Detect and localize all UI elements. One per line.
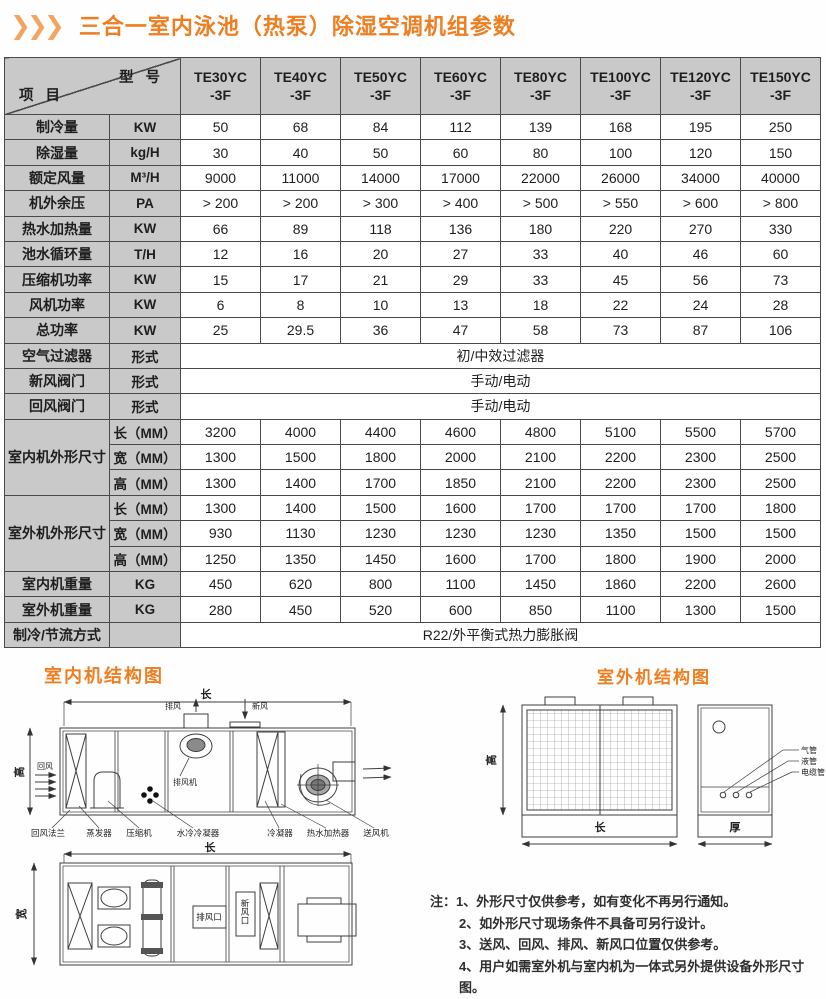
- cell-value: 4600: [421, 419, 501, 444]
- cell-value: 16: [261, 241, 341, 266]
- cell-value: 73: [581, 318, 661, 343]
- cell-value: 220: [581, 216, 661, 241]
- cell-value: 1700: [501, 546, 581, 571]
- cell-span-value: R22/外平衡式热力膨胀阀: [181, 622, 821, 647]
- exhaust-vent-label: 排风口: [196, 912, 222, 922]
- row-label: 池水循环量: [5, 241, 110, 266]
- cell-value: 1700: [341, 470, 421, 495]
- cell-value: 24: [661, 292, 741, 317]
- table-row: 新风阀门形式手动/电动: [5, 368, 821, 393]
- cell-value: 2500: [741, 470, 821, 495]
- filter-x-box: [68, 883, 92, 949]
- cell-value: 930: [181, 521, 261, 546]
- table-row: 池水循环量T/H1216202733404660: [5, 241, 821, 266]
- supply-blower-shape: [297, 762, 355, 806]
- page-title: 三合一室内泳池（热泵）除湿空调机组参数: [79, 16, 516, 38]
- cell-value: > 600: [661, 191, 741, 216]
- row-label: 压缩机功率: [5, 267, 110, 292]
- row-unit: M³/H: [110, 165, 181, 190]
- cell-value: 50: [341, 140, 421, 165]
- cell-value: 29: [421, 267, 501, 292]
- cell-value: 1500: [261, 445, 341, 470]
- row-unit: KG: [110, 597, 181, 622]
- top-tab: [545, 697, 575, 705]
- cell-value: 18: [501, 292, 581, 317]
- cell-value: 1230: [421, 521, 501, 546]
- row-unit: KW: [110, 115, 181, 140]
- cell-value: 1100: [421, 572, 501, 597]
- corner-model-label: 型 号: [119, 66, 164, 87]
- cell-value: 10: [341, 292, 421, 317]
- row-label: 新风阀门: [5, 368, 110, 393]
- table-row: 高（MM）13001400170018502100220023002500: [5, 470, 821, 495]
- dim-length-label: 长: [201, 688, 213, 701]
- return-air-label: 回风: [37, 762, 53, 771]
- row-label: 制冷量: [5, 115, 110, 140]
- cell-value: 21: [341, 267, 421, 292]
- cell-value: 2100: [501, 470, 581, 495]
- cell-value: 22: [581, 292, 661, 317]
- cell-value: 1500: [741, 597, 821, 622]
- cell-value: 106: [741, 318, 821, 343]
- pipe-leader-lines: [724, 750, 799, 792]
- cell-value: 1800: [341, 445, 421, 470]
- row-label: 制冷/节流方式: [5, 622, 110, 647]
- cell-value: 12: [181, 241, 261, 266]
- supply-air-arrows-icon: [363, 768, 391, 778]
- table-row: 空气过滤器形式初/中效过滤器: [5, 343, 821, 368]
- cell-value: 2000: [421, 445, 501, 470]
- spec-table-head: 型 号项 目TE30YC-3FTE40YC-3FTE50YC-3FTE60YC-…: [5, 58, 821, 115]
- cell-value: 1130: [261, 521, 341, 546]
- dim-width-label: 宽: [14, 909, 28, 921]
- cell-value: 27: [421, 241, 501, 266]
- model-name: TE30YC: [181, 68, 260, 86]
- row-unit: 宽（MM）: [110, 445, 181, 470]
- row-unit: KG: [110, 572, 181, 597]
- row-unit: KW: [110, 267, 181, 292]
- cell-value: 270: [661, 216, 741, 241]
- note-line: 2、如外形尺寸现场条件不具备可另行设计。: [430, 913, 824, 935]
- exhaust-fan-shape: [180, 699, 212, 776]
- cell-value: 5100: [581, 419, 661, 444]
- dim-height-label: 高: [12, 767, 26, 778]
- cell-value: 68: [261, 115, 341, 140]
- exhaust-air-label: 排风: [165, 701, 181, 711]
- cell-value: 1700: [581, 495, 661, 520]
- cell-value: 2300: [661, 445, 741, 470]
- section-dividers: [171, 866, 284, 962]
- row-unit: 形式: [110, 368, 181, 393]
- row-unit: KW: [110, 292, 181, 317]
- cell-span-value: 手动/电动: [181, 394, 821, 419]
- component-label: 热水加热器: [307, 828, 350, 838]
- cell-value: 9000: [181, 165, 261, 190]
- cell-value: 30: [181, 140, 261, 165]
- cell-value: 118: [341, 216, 421, 241]
- pipe-port: [733, 792, 739, 798]
- indoor-unit-top-view-diagram: 长 宽 排风口 新风口: [8, 842, 408, 990]
- cell-value: 1500: [741, 521, 821, 546]
- cell-value: 195: [661, 115, 741, 140]
- component-label: 压缩机: [126, 828, 152, 838]
- table-row: 热水加热量KW6689118136180220270330: [5, 216, 821, 241]
- row-unit: [110, 622, 181, 647]
- row-label: 额定风量: [5, 165, 110, 190]
- cell-value: 620: [261, 572, 341, 597]
- cell-value: 84: [341, 115, 421, 140]
- cell-value: 58: [501, 318, 581, 343]
- table-row: 机外余压PA> 200> 200> 300> 400> 500> 550> 60…: [5, 191, 821, 216]
- cell-value: 2300: [661, 470, 741, 495]
- cell-value: 150: [741, 140, 821, 165]
- model-name: TE80YC: [501, 68, 580, 86]
- cell-value: 1850: [421, 470, 501, 495]
- cell-value: 1250: [181, 546, 261, 571]
- table-row: 宽（MM）13001500180020002100220023002500: [5, 445, 821, 470]
- cell-value: 56: [661, 267, 741, 292]
- cell-value: 20: [341, 241, 421, 266]
- fresh-vent-label: 新风口: [240, 898, 250, 924]
- cell-value: 17000: [421, 165, 501, 190]
- row-group-label: 室外机外形尺寸: [5, 495, 110, 571]
- pipe-port: [746, 792, 752, 798]
- cell-value: 1700: [661, 495, 741, 520]
- cell-value: 112: [421, 115, 501, 140]
- cell-value: 100: [581, 140, 661, 165]
- row-label: 除湿量: [5, 140, 110, 165]
- row-unit: kg/H: [110, 140, 181, 165]
- handle-hole: [713, 721, 725, 733]
- compressor-shape: [90, 772, 124, 808]
- model-suffix: -3F: [661, 86, 740, 104]
- cell-value: > 200: [181, 191, 261, 216]
- note-line: 4、用户如需室外机与室内机为一体式另外提供设备外形尺寸图。: [430, 956, 824, 999]
- chevrons-icon: ❯❯❯: [10, 14, 67, 39]
- cell-value: 2600: [741, 572, 821, 597]
- dim-height-label: 高: [484, 755, 498, 766]
- cell-value: 5500: [661, 419, 741, 444]
- supply-fan-box: [298, 898, 356, 942]
- row-label: 空气过滤器: [5, 343, 110, 368]
- row-label: 室外机重量: [5, 597, 110, 622]
- cell-value: 1450: [501, 572, 581, 597]
- cell-value: 25: [181, 318, 261, 343]
- cell-value: 1450: [341, 546, 421, 571]
- component-label: 冷凝器: [267, 828, 293, 838]
- return-filter: [66, 734, 86, 808]
- model-suffix: -3F: [261, 86, 340, 104]
- table-row: 室外机外形尺寸长（MM）1300140015001600170017001700…: [5, 495, 821, 520]
- cell-value: 47: [421, 318, 501, 343]
- pipe-label: 液管: [801, 756, 817, 766]
- row-label: 回风阀门: [5, 394, 110, 419]
- table-row: 室内机外形尺寸长（MM）3200400044004600480051005500…: [5, 419, 821, 444]
- cell-value: 46: [661, 241, 741, 266]
- cell-value: 1400: [261, 495, 341, 520]
- water-cooled-condenser-shape: [141, 786, 159, 804]
- pipe-label: 电缆管: [801, 767, 825, 777]
- component-label: 送风机: [363, 828, 389, 838]
- cell-value: 60: [741, 241, 821, 266]
- table-row: 宽（MM）9301130123012301230135015001500: [5, 521, 821, 546]
- cell-value: 13: [421, 292, 501, 317]
- cell-value: 600: [421, 597, 501, 622]
- cell-value: 2000: [741, 546, 821, 571]
- cell-value: 1350: [261, 546, 341, 571]
- row-unit: 长（MM）: [110, 495, 181, 520]
- model-name: TE150YC: [741, 68, 820, 86]
- cell-value: 80: [501, 140, 581, 165]
- row-label: 室内机重量: [5, 572, 110, 597]
- cell-value: 450: [181, 572, 261, 597]
- cell-value: 1300: [181, 495, 261, 520]
- cell-value: 3200: [181, 419, 261, 444]
- cell-value: > 500: [501, 191, 581, 216]
- cell-value: 1600: [421, 495, 501, 520]
- cell-value: 2200: [581, 445, 661, 470]
- corner-item-label: 项 目: [19, 84, 64, 105]
- cell-value: > 200: [261, 191, 341, 216]
- model-header-cell: TE50YC-3F: [341, 58, 421, 115]
- component-label: 水冷冷凝器: [177, 828, 220, 838]
- notes-block: 注：1、外形尺寸仅供参考，如有变化不再另行通知。 2、如外形尺寸现场条件不具备可…: [430, 891, 824, 999]
- cell-value: 250: [741, 115, 821, 140]
- fresh-air-label: 新风: [252, 701, 268, 711]
- row-unit: KW: [110, 318, 181, 343]
- table-row: 高（MM）12501350145016001700180019002000: [5, 546, 821, 571]
- cell-value: 4400: [341, 419, 421, 444]
- cell-value: 22000: [501, 165, 581, 190]
- indoor-diagram-heading: 室内机结构图: [44, 662, 164, 688]
- compressor-pair-shape: [98, 887, 130, 947]
- cell-value: 1800: [741, 495, 821, 520]
- row-label: 总功率: [5, 318, 110, 343]
- cell-value: 2100: [501, 445, 581, 470]
- header-row: 型 号项 目TE30YC-3FTE40YC-3FTE50YC-3FTE60YC-…: [5, 58, 821, 115]
- indoor-unit-side-view-diagram: 长 高 回风 排风 新风 排风机 回风法兰 蒸发器 压缩机 水冷冷凝器 冷凝器 …: [8, 688, 408, 848]
- cell-value: 73: [741, 267, 821, 292]
- dim-depth-label: 厚: [730, 821, 741, 834]
- table-row: 回风阀门形式手动/电动: [5, 394, 821, 419]
- cell-value: 1900: [661, 546, 741, 571]
- cell-value: 17: [261, 267, 341, 292]
- model-suffix: -3F: [501, 86, 580, 104]
- model-header-cell: TE150YC-3F: [741, 58, 821, 115]
- cell-value: 1400: [261, 470, 341, 495]
- component-label: 回风法兰: [31, 828, 65, 838]
- table-row: 除湿量kg/H3040506080100120150: [5, 140, 821, 165]
- cell-value: 1500: [661, 521, 741, 546]
- model-suffix: -3F: [341, 86, 420, 104]
- cell-value: 87: [661, 318, 741, 343]
- model-header-cell: TE120YC-3F: [661, 58, 741, 115]
- table-row: 室内机重量KG45062080011001450186022002600: [5, 572, 821, 597]
- cell-value: 15: [181, 267, 261, 292]
- row-unit: 高（MM）: [110, 546, 181, 571]
- model-header-cell: TE30YC-3F: [181, 58, 261, 115]
- model-suffix: -3F: [741, 86, 820, 104]
- cell-value: 2500: [741, 445, 821, 470]
- row-unit: T/H: [110, 241, 181, 266]
- table-row: 额定风量M³/H90001100014000170002200026000340…: [5, 165, 821, 190]
- cell-value: 180: [501, 216, 581, 241]
- note-line: 3、送风、回风、排风、新风口位置仅供参考。: [430, 934, 824, 956]
- cell-value: 136: [421, 216, 501, 241]
- cell-value: 1350: [581, 521, 661, 546]
- cell-value: 1300: [661, 597, 741, 622]
- cell-value: 1700: [501, 495, 581, 520]
- cell-value: 6: [181, 292, 261, 317]
- cell-value: 36: [341, 318, 421, 343]
- cell-value: 26000: [581, 165, 661, 190]
- row-unit: 宽（MM）: [110, 521, 181, 546]
- return-air-arrows-icon: [35, 775, 56, 796]
- component-label: 蒸发器: [86, 828, 112, 838]
- top-tab: [623, 697, 653, 705]
- spec-table-body: 制冷量KW506884112139168195250除湿量kg/H3040506…: [5, 115, 821, 648]
- model-name: TE120YC: [661, 68, 740, 86]
- cell-value: 33: [501, 267, 581, 292]
- model-name: TE40YC: [261, 68, 340, 86]
- model-header-cell: TE100YC-3F: [581, 58, 661, 115]
- cell-value: > 400: [421, 191, 501, 216]
- table-row: 制冷量KW506884112139168195250: [5, 115, 821, 140]
- row-unit: 高（MM）: [110, 470, 181, 495]
- dim-length-label: 长: [205, 842, 217, 854]
- row-group-label: 室内机外形尺寸: [5, 419, 110, 495]
- cell-value: 8: [261, 292, 341, 317]
- cell-value: > 300: [341, 191, 421, 216]
- condenser-coil-shape: [257, 732, 285, 807]
- cell-value: 50: [181, 115, 261, 140]
- cell-value: 40: [581, 241, 661, 266]
- cell-value: 800: [341, 572, 421, 597]
- page-header: ❯❯❯ 三合一室内泳池（热泵）除湿空调机组参数: [10, 14, 516, 39]
- row-unit: KW: [110, 216, 181, 241]
- row-unit: PA: [110, 191, 181, 216]
- cell-value: 66: [181, 216, 261, 241]
- cell-value: 1600: [421, 546, 501, 571]
- dim-length-label: 长: [595, 820, 607, 834]
- row-unit: 形式: [110, 343, 181, 368]
- cell-value: 34000: [661, 165, 741, 190]
- cell-value: 1230: [341, 521, 421, 546]
- cell-value: 1300: [181, 470, 261, 495]
- model-name: TE60YC: [421, 68, 500, 86]
- pipe-port: [720, 792, 726, 798]
- cell-value: 1230: [501, 521, 581, 546]
- note-line: 注：1、外形尺寸仅供参考，如有变化不再另行通知。: [430, 891, 824, 913]
- cell-value: 89: [261, 216, 341, 241]
- heat-exchanger-cylinder-shape: [141, 880, 163, 956]
- cell-value: > 800: [741, 191, 821, 216]
- cell-value: 168: [581, 115, 661, 140]
- model-suffix: -3F: [181, 86, 260, 104]
- cell-value: 5700: [741, 419, 821, 444]
- cell-value: > 550: [581, 191, 661, 216]
- cell-value: 330: [741, 216, 821, 241]
- cell-value: 450: [261, 597, 341, 622]
- cell-value: 14000: [341, 165, 421, 190]
- cell-span-value: 初/中效过滤器: [181, 343, 821, 368]
- outdoor-diagram-heading: 室外机结构图: [597, 663, 711, 688]
- cell-value: 520: [341, 597, 421, 622]
- cell-value: 139: [501, 115, 581, 140]
- cell-value: 1300: [181, 445, 261, 470]
- table-row: 风机功率KW68101318222428: [5, 292, 821, 317]
- outdoor-side-outline: [698, 705, 772, 815]
- cell-value: 2200: [581, 470, 661, 495]
- model-header-cell: TE60YC-3F: [421, 58, 501, 115]
- cell-value: 60: [421, 140, 501, 165]
- table-row: 总功率KW2529.53647587387106: [5, 318, 821, 343]
- row-unit: 形式: [110, 394, 181, 419]
- cell-value: 4000: [261, 419, 341, 444]
- cell-value: 11000: [261, 165, 341, 190]
- cell-value: 1500: [341, 495, 421, 520]
- cell-value: 1860: [581, 572, 661, 597]
- cell-value: 120: [661, 140, 741, 165]
- pipe-label: 气管: [801, 745, 817, 755]
- cell-value: 1100: [581, 597, 661, 622]
- spec-table: 型 号项 目TE30YC-3FTE40YC-3FTE50YC-3FTE60YC-…: [4, 57, 821, 648]
- cell-value: 40000: [741, 165, 821, 190]
- cell-value: 29.5: [261, 318, 341, 343]
- row-label: 机外余压: [5, 191, 110, 216]
- cell-value: 2200: [661, 572, 741, 597]
- model-header-cell: TE40YC-3F: [261, 58, 341, 115]
- cell-value: 45: [581, 267, 661, 292]
- table-row: 制冷/节流方式R22/外平衡式热力膨胀阀: [5, 622, 821, 647]
- cell-value: 28: [741, 292, 821, 317]
- outdoor-unit-diagram: 高 长 厚 气管 液管 电缆管: [470, 692, 826, 852]
- row-label: 热水加热量: [5, 216, 110, 241]
- model-name: TE100YC: [581, 68, 660, 86]
- exhaust-fan-label: 排风机: [173, 777, 197, 787]
- filter-x-box: [260, 883, 278, 949]
- cell-value: 4800: [501, 419, 581, 444]
- cell-value: 280: [181, 597, 261, 622]
- cell-value: 850: [501, 597, 581, 622]
- model-suffix: -3F: [581, 86, 660, 104]
- row-unit: 长（MM）: [110, 419, 181, 444]
- table-row: 室外机重量KG280450520600850110013001500: [5, 597, 821, 622]
- cell-span-value: 手动/电动: [181, 368, 821, 393]
- cell-value: 40: [261, 140, 341, 165]
- model-name: TE50YC: [341, 68, 420, 86]
- cell-value: 33: [501, 241, 581, 266]
- model-suffix: -3F: [421, 86, 500, 104]
- section-dividers: [115, 731, 233, 812]
- table-row: 压缩机功率KW1517212933455673: [5, 267, 821, 292]
- row-label: 风机功率: [5, 292, 110, 317]
- corner-cell: 型 号项 目: [5, 58, 181, 115]
- cell-value: 1800: [581, 546, 661, 571]
- model-header-cell: TE80YC-3F: [501, 58, 581, 115]
